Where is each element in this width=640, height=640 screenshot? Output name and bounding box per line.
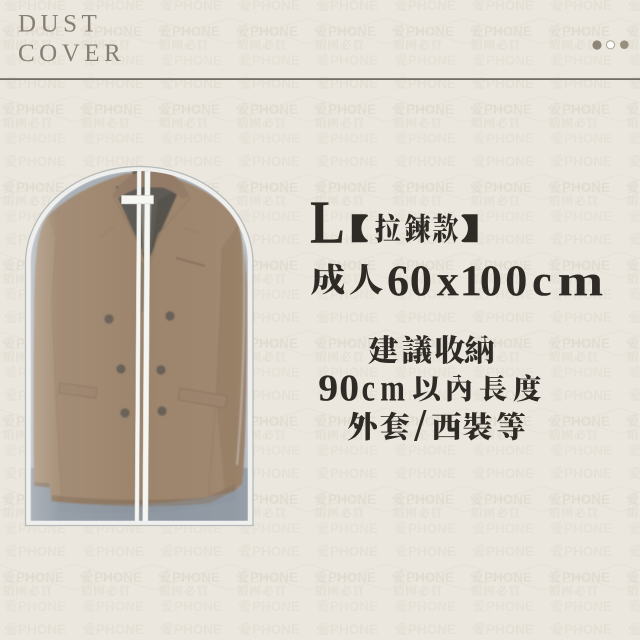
svg-text:COVER: COVER — [18, 40, 125, 67]
svg-text:DUST: DUST — [18, 11, 101, 38]
